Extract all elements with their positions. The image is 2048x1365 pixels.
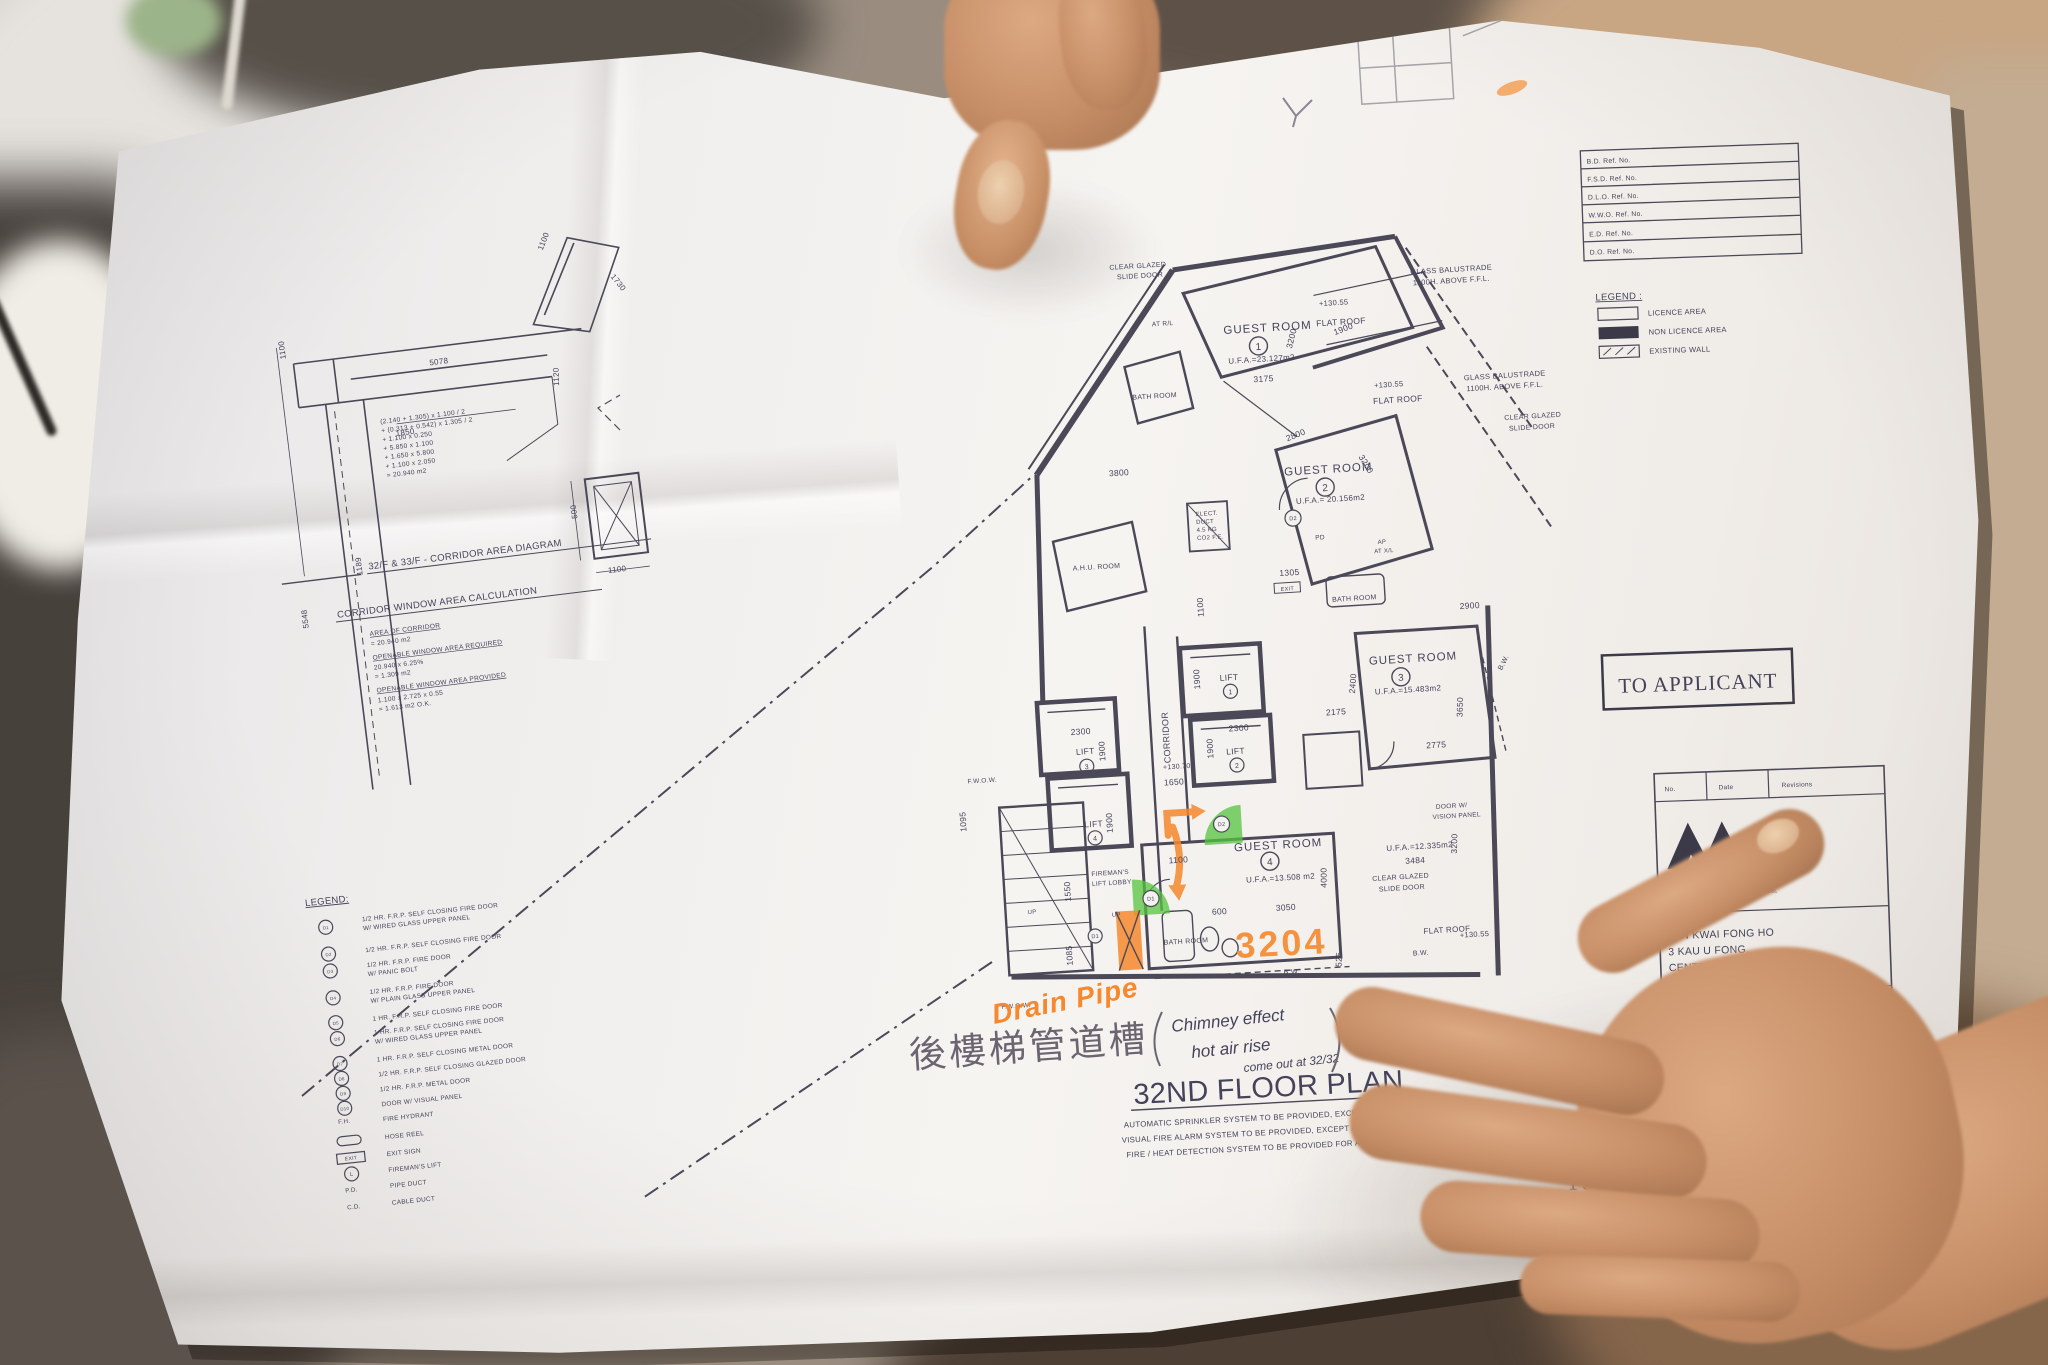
photo-of-floor-plan: 1100 1730 5078 1850 1100 1120 500 1100 5…	[0, 0, 2048, 1365]
pinky-finger	[1519, 1253, 1801, 1323]
